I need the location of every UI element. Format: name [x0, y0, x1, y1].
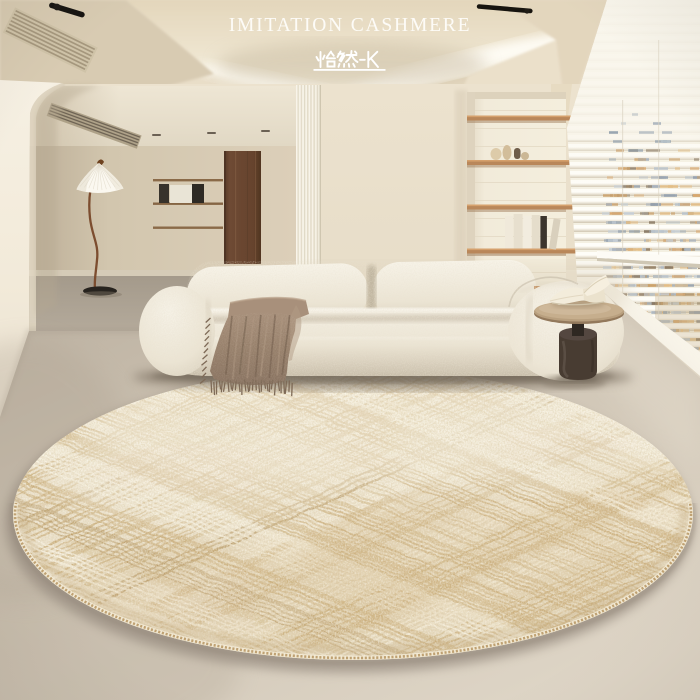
- svg-text:IMITATION CASHMERE: IMITATION CASHMERE: [229, 15, 472, 36]
